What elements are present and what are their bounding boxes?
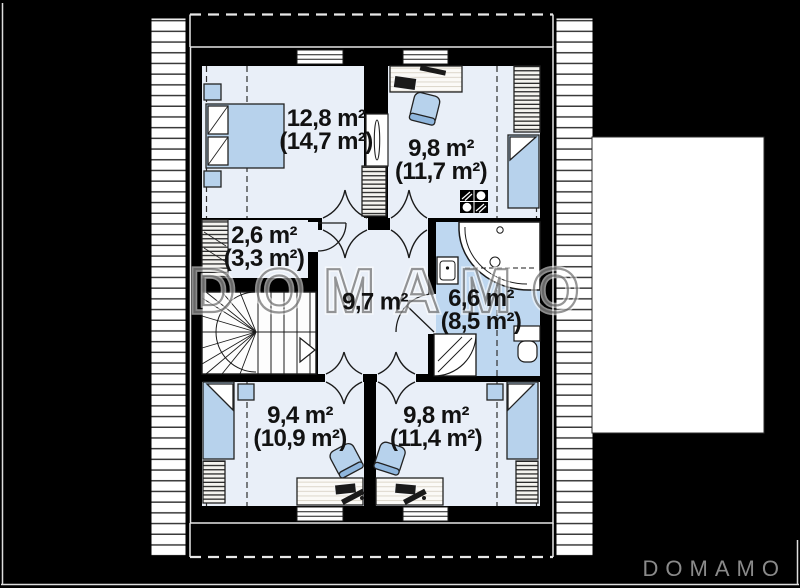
passage-gap bbox=[325, 374, 363, 382]
brand-logo: DOMAMO bbox=[643, 556, 786, 582]
window-icon bbox=[403, 50, 448, 64]
stove-hob-icon bbox=[460, 190, 488, 213]
wardrobe-icon bbox=[514, 66, 540, 132]
passage-gap bbox=[390, 218, 428, 230]
window-icon bbox=[297, 50, 343, 64]
nightstand-icon bbox=[238, 384, 254, 400]
room-label-bedroom-bottom-left: 9,4 m² (10,9 m²) bbox=[253, 404, 346, 450]
room-label-closet: 2,6 m² (3,3 m²) bbox=[224, 224, 305, 270]
room-area-total: (11,4 m²) bbox=[390, 427, 482, 450]
room-label-bathroom: 6,6 m² (8,5 m²) bbox=[441, 287, 522, 333]
room-area: 6,6 m² bbox=[441, 287, 522, 310]
room-area: 9,8 m² bbox=[390, 404, 482, 427]
room-area: 9,7 m² bbox=[342, 291, 408, 314]
wardrobe-icon bbox=[203, 461, 225, 503]
passage-gap bbox=[377, 374, 416, 382]
closet-door-gap bbox=[308, 222, 318, 252]
room-area: 12,8 m² bbox=[279, 107, 372, 130]
room-label-hall: 9,7 m² bbox=[342, 291, 408, 314]
room-label-bedroom-top-left: 12,8 m² (14,7 m²) bbox=[279, 107, 372, 153]
room-label-bedroom-bottom-right: 9,8 m² (11,4 m²) bbox=[390, 404, 482, 450]
window-icon bbox=[297, 507, 343, 521]
room-area: 9,8 m² bbox=[395, 137, 487, 160]
blank-panel bbox=[592, 137, 764, 433]
floor-plan-page: DOMAMO DOMAMO 12,8 m² (14,7 m²) 9,8 m² (… bbox=[0, 0, 800, 588]
room-area-total: (10,9 m²) bbox=[253, 427, 346, 450]
room-label-top-right: 9,8 m² (11,7 m²) bbox=[395, 137, 487, 183]
roof-eave-hatch-left bbox=[151, 18, 186, 556]
laptop-icon bbox=[395, 483, 417, 495]
wardrobe-icon bbox=[362, 166, 386, 216]
laptop-icon bbox=[335, 483, 357, 495]
room-area-total: (3,3 m²) bbox=[224, 247, 305, 270]
shower-icon bbox=[434, 334, 476, 376]
room-area-total: (8,5 m²) bbox=[441, 310, 522, 333]
room-area: 9,4 m² bbox=[253, 404, 346, 427]
nightstand-icon bbox=[487, 384, 503, 400]
nightstand-icon bbox=[204, 84, 221, 100]
wardrobe-icon bbox=[516, 461, 538, 503]
window-icon bbox=[403, 507, 448, 521]
room-area: 2,6 m² bbox=[224, 224, 305, 247]
laptop-icon bbox=[393, 76, 416, 91]
room-area-total: (14,7 m²) bbox=[279, 130, 372, 153]
nightstand-icon bbox=[204, 171, 221, 187]
room-area-total: (11,7 m²) bbox=[395, 160, 487, 183]
mouse-icon bbox=[422, 496, 426, 500]
mouse-icon bbox=[360, 496, 364, 500]
